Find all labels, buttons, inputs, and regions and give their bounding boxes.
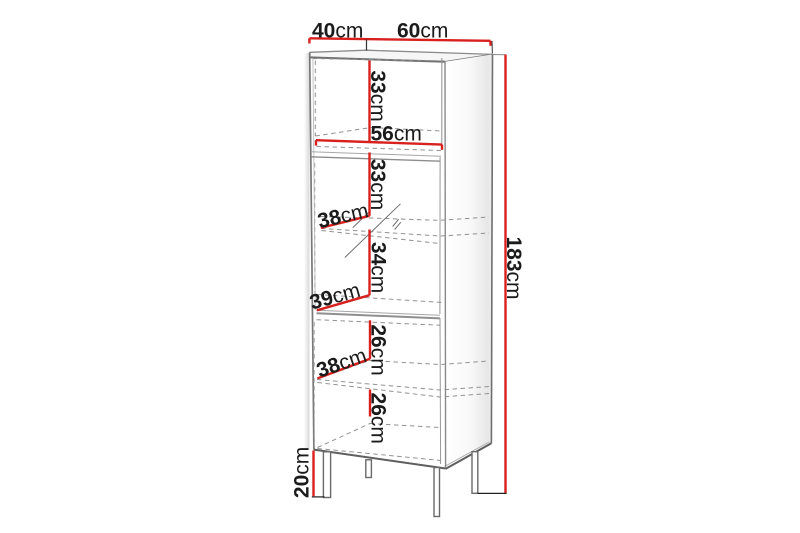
svg-text:33cm: 33cm — [366, 159, 389, 210]
svg-text:39cm: 39cm — [307, 279, 363, 315]
svg-text:26cm: 26cm — [367, 324, 390, 375]
svg-text:34cm: 34cm — [367, 242, 390, 293]
svg-text:60cm: 60cm — [397, 20, 448, 43]
svg-text:38cm: 38cm — [315, 199, 370, 233]
svg-text:26cm: 26cm — [367, 393, 390, 444]
svg-text:56cm: 56cm — [371, 123, 422, 146]
svg-text:183cm: 183cm — [502, 236, 525, 299]
svg-text:33cm: 33cm — [366, 70, 389, 121]
svg-text:40cm: 40cm — [312, 20, 363, 43]
svg-text:38cm: 38cm — [314, 344, 370, 382]
svg-text:20cm: 20cm — [291, 447, 314, 498]
